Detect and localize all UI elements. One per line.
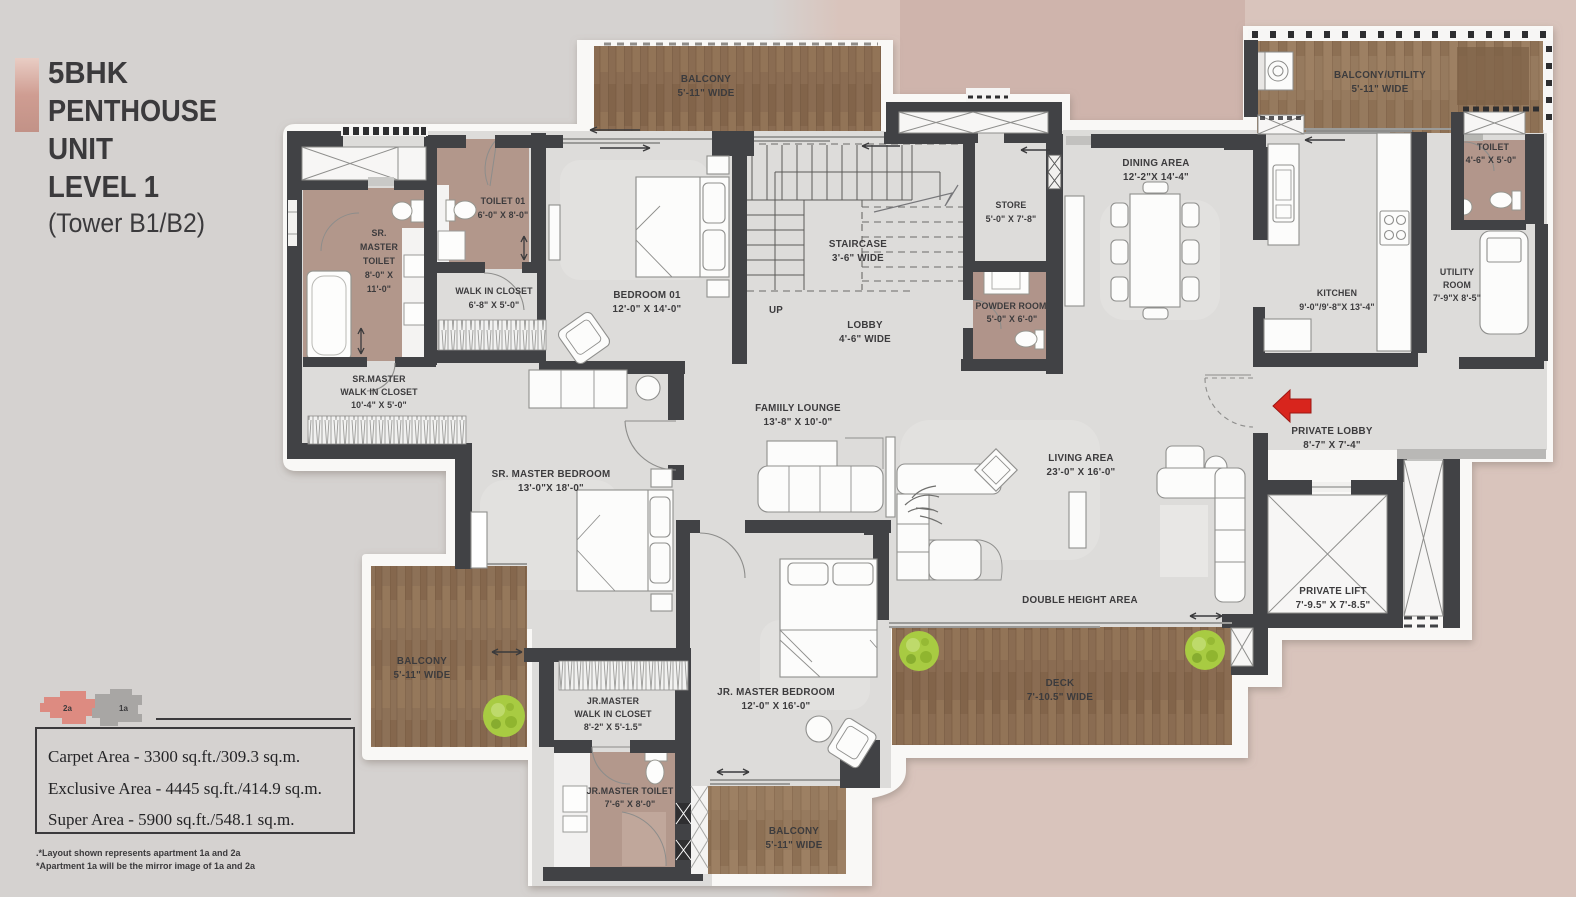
svg-text:5'-11" WIDE: 5'-11" WIDE: [1351, 84, 1408, 95]
svg-text:5'-0" X 6'-0": 5'-0" X 6'-0": [987, 314, 1038, 324]
svg-text:BALCONY: BALCONY: [769, 826, 819, 837]
svg-text:10'-4" X 5'-0": 10'-4" X 5'-0": [351, 400, 407, 410]
svg-text:KITCHEN: KITCHEN: [1317, 288, 1357, 298]
svg-text:MASTER: MASTER: [360, 242, 399, 252]
svg-text:UTILITY: UTILITY: [1440, 267, 1474, 277]
svg-text:LOBBY: LOBBY: [847, 320, 883, 331]
svg-text:5'-11" WIDE: 5'-11" WIDE: [677, 88, 734, 99]
svg-text:7'-6" X 8'-0": 7'-6" X 8'-0": [605, 799, 656, 809]
svg-text:8'-7" X 7'-4": 8'-7" X 7'-4": [1303, 440, 1361, 451]
svg-text:7'-9"X 8'-5": 7'-9"X 8'-5": [1433, 293, 1481, 303]
svg-text:PRIVATE LIFT: PRIVATE LIFT: [1299, 586, 1366, 597]
svg-text:DOUBLE HEIGHT AREA: DOUBLE HEIGHT AREA: [1022, 595, 1138, 606]
svg-text:WALK IN CLOSET: WALK IN CLOSET: [455, 286, 533, 296]
svg-text:(Tower B1/B2): (Tower B1/B2): [48, 208, 205, 238]
svg-text:.*Layout shown represents apar: .*Layout shown represents apartment 1a a…: [36, 848, 242, 858]
svg-text:WALK IN CLOSET: WALK IN CLOSET: [340, 387, 418, 397]
svg-text:6'-0" X 8'-0": 6'-0" X 8'-0": [478, 210, 529, 220]
svg-text:8'-0" X: 8'-0" X: [365, 270, 393, 280]
svg-text:7'-9.5" X 7'-8.5": 7'-9.5" X 7'-8.5": [1296, 600, 1371, 611]
svg-text:LIVING AREA: LIVING AREA: [1048, 453, 1114, 464]
svg-text:SR.: SR.: [371, 228, 386, 238]
svg-text:PENTHOUSE: PENTHOUSE: [48, 93, 217, 128]
svg-text:12'-0" X 14'-0": 12'-0" X 14'-0": [613, 304, 682, 315]
svg-text:UP: UP: [769, 305, 783, 316]
svg-text:BALCONY/UTILITY: BALCONY/UTILITY: [1334, 70, 1426, 81]
svg-text:4'-6" WIDE: 4'-6" WIDE: [839, 334, 891, 345]
svg-text:BALCONY: BALCONY: [397, 656, 447, 667]
svg-text:UNIT: UNIT: [48, 131, 113, 166]
svg-text:BALCONY: BALCONY: [681, 74, 731, 85]
svg-text:JR. MASTER BEDROOM: JR. MASTER BEDROOM: [717, 687, 835, 698]
svg-text:13'-0"X 18'-0": 13'-0"X 18'-0": [518, 483, 584, 494]
svg-text:5'-11" WIDE: 5'-11" WIDE: [765, 840, 822, 851]
svg-text:13'-8" X 10'-0": 13'-8" X 10'-0": [764, 417, 833, 428]
svg-text:3'-6" WIDE: 3'-6" WIDE: [832, 253, 884, 264]
svg-text:TOILET 01: TOILET 01: [481, 196, 526, 206]
svg-text:SR. MASTER BEDROOM: SR. MASTER BEDROOM: [492, 469, 611, 480]
svg-text:SR.MASTER: SR.MASTER: [352, 374, 406, 384]
svg-text:DECK: DECK: [1046, 678, 1075, 689]
svg-text:FAMIILY LOUNGE: FAMIILY LOUNGE: [755, 403, 841, 414]
svg-text:5'-0" X 7'-8": 5'-0" X 7'-8": [986, 214, 1037, 224]
svg-text:DINING AREA: DINING AREA: [1122, 158, 1189, 169]
svg-text:23'-0" X 16'-0": 23'-0" X 16'-0": [1047, 467, 1116, 478]
svg-text:2a: 2a: [63, 704, 72, 713]
svg-text:11'-0": 11'-0": [367, 284, 391, 294]
svg-text:WALK IN CLOSET: WALK IN CLOSET: [574, 709, 652, 719]
svg-text:Exclusive Area - 4445 sq.ft./4: Exclusive Area - 4445 sq.ft./414.9 sq.m.: [48, 779, 322, 798]
svg-text:12'-0" X 16'-0": 12'-0" X 16'-0": [742, 701, 811, 712]
svg-text:STAIRCASE: STAIRCASE: [829, 239, 887, 250]
svg-text:Carpet Area - 3300 sq.ft./309.: Carpet Area - 3300 sq.ft./309.3 sq.m.: [48, 747, 300, 766]
svg-text:7'-10.5" WIDE: 7'-10.5" WIDE: [1027, 692, 1094, 703]
svg-text:5BHK: 5BHK: [48, 55, 129, 90]
svg-text:*Apartment 1a will be the mirr: *Apartment 1a will be the mirror image o…: [36, 861, 256, 871]
svg-text:POWDER ROOM: POWDER ROOM: [975, 301, 1046, 311]
svg-text:JR.MASTER TOILET: JR.MASTER TOILET: [587, 786, 674, 796]
svg-text:9'-0"/9'-8"X 13'-4": 9'-0"/9'-8"X 13'-4": [1299, 302, 1374, 312]
svg-text:Super Area - 5900 sq.ft./548.1: Super Area - 5900 sq.ft./548.1 sq.m.: [48, 810, 294, 829]
svg-text:PRIVATE LOBBY: PRIVATE LOBBY: [1291, 426, 1372, 437]
svg-text:BEDROOM 01: BEDROOM 01: [613, 290, 681, 301]
svg-text:4'-6" X 5'-0": 4'-6" X 5'-0": [1466, 155, 1517, 165]
svg-text:6'-8" X 5'-0": 6'-8" X 5'-0": [469, 300, 520, 310]
svg-text:TOILET: TOILET: [363, 256, 395, 266]
svg-text:LEVEL 1: LEVEL 1: [48, 169, 159, 204]
svg-text:STORE: STORE: [996, 200, 1027, 210]
svg-text:ROOM: ROOM: [1443, 280, 1471, 290]
svg-text:TOILET: TOILET: [1477, 142, 1509, 152]
svg-text:5'-11" WIDE: 5'-11" WIDE: [393, 670, 450, 681]
svg-text:8'-2" X 5'-1.5": 8'-2" X 5'-1.5": [584, 722, 642, 732]
svg-text:JR.MASTER: JR.MASTER: [587, 696, 640, 706]
svg-text:1a: 1a: [119, 704, 128, 713]
svg-text:12'-2"X 14'-4": 12'-2"X 14'-4": [1123, 172, 1189, 183]
